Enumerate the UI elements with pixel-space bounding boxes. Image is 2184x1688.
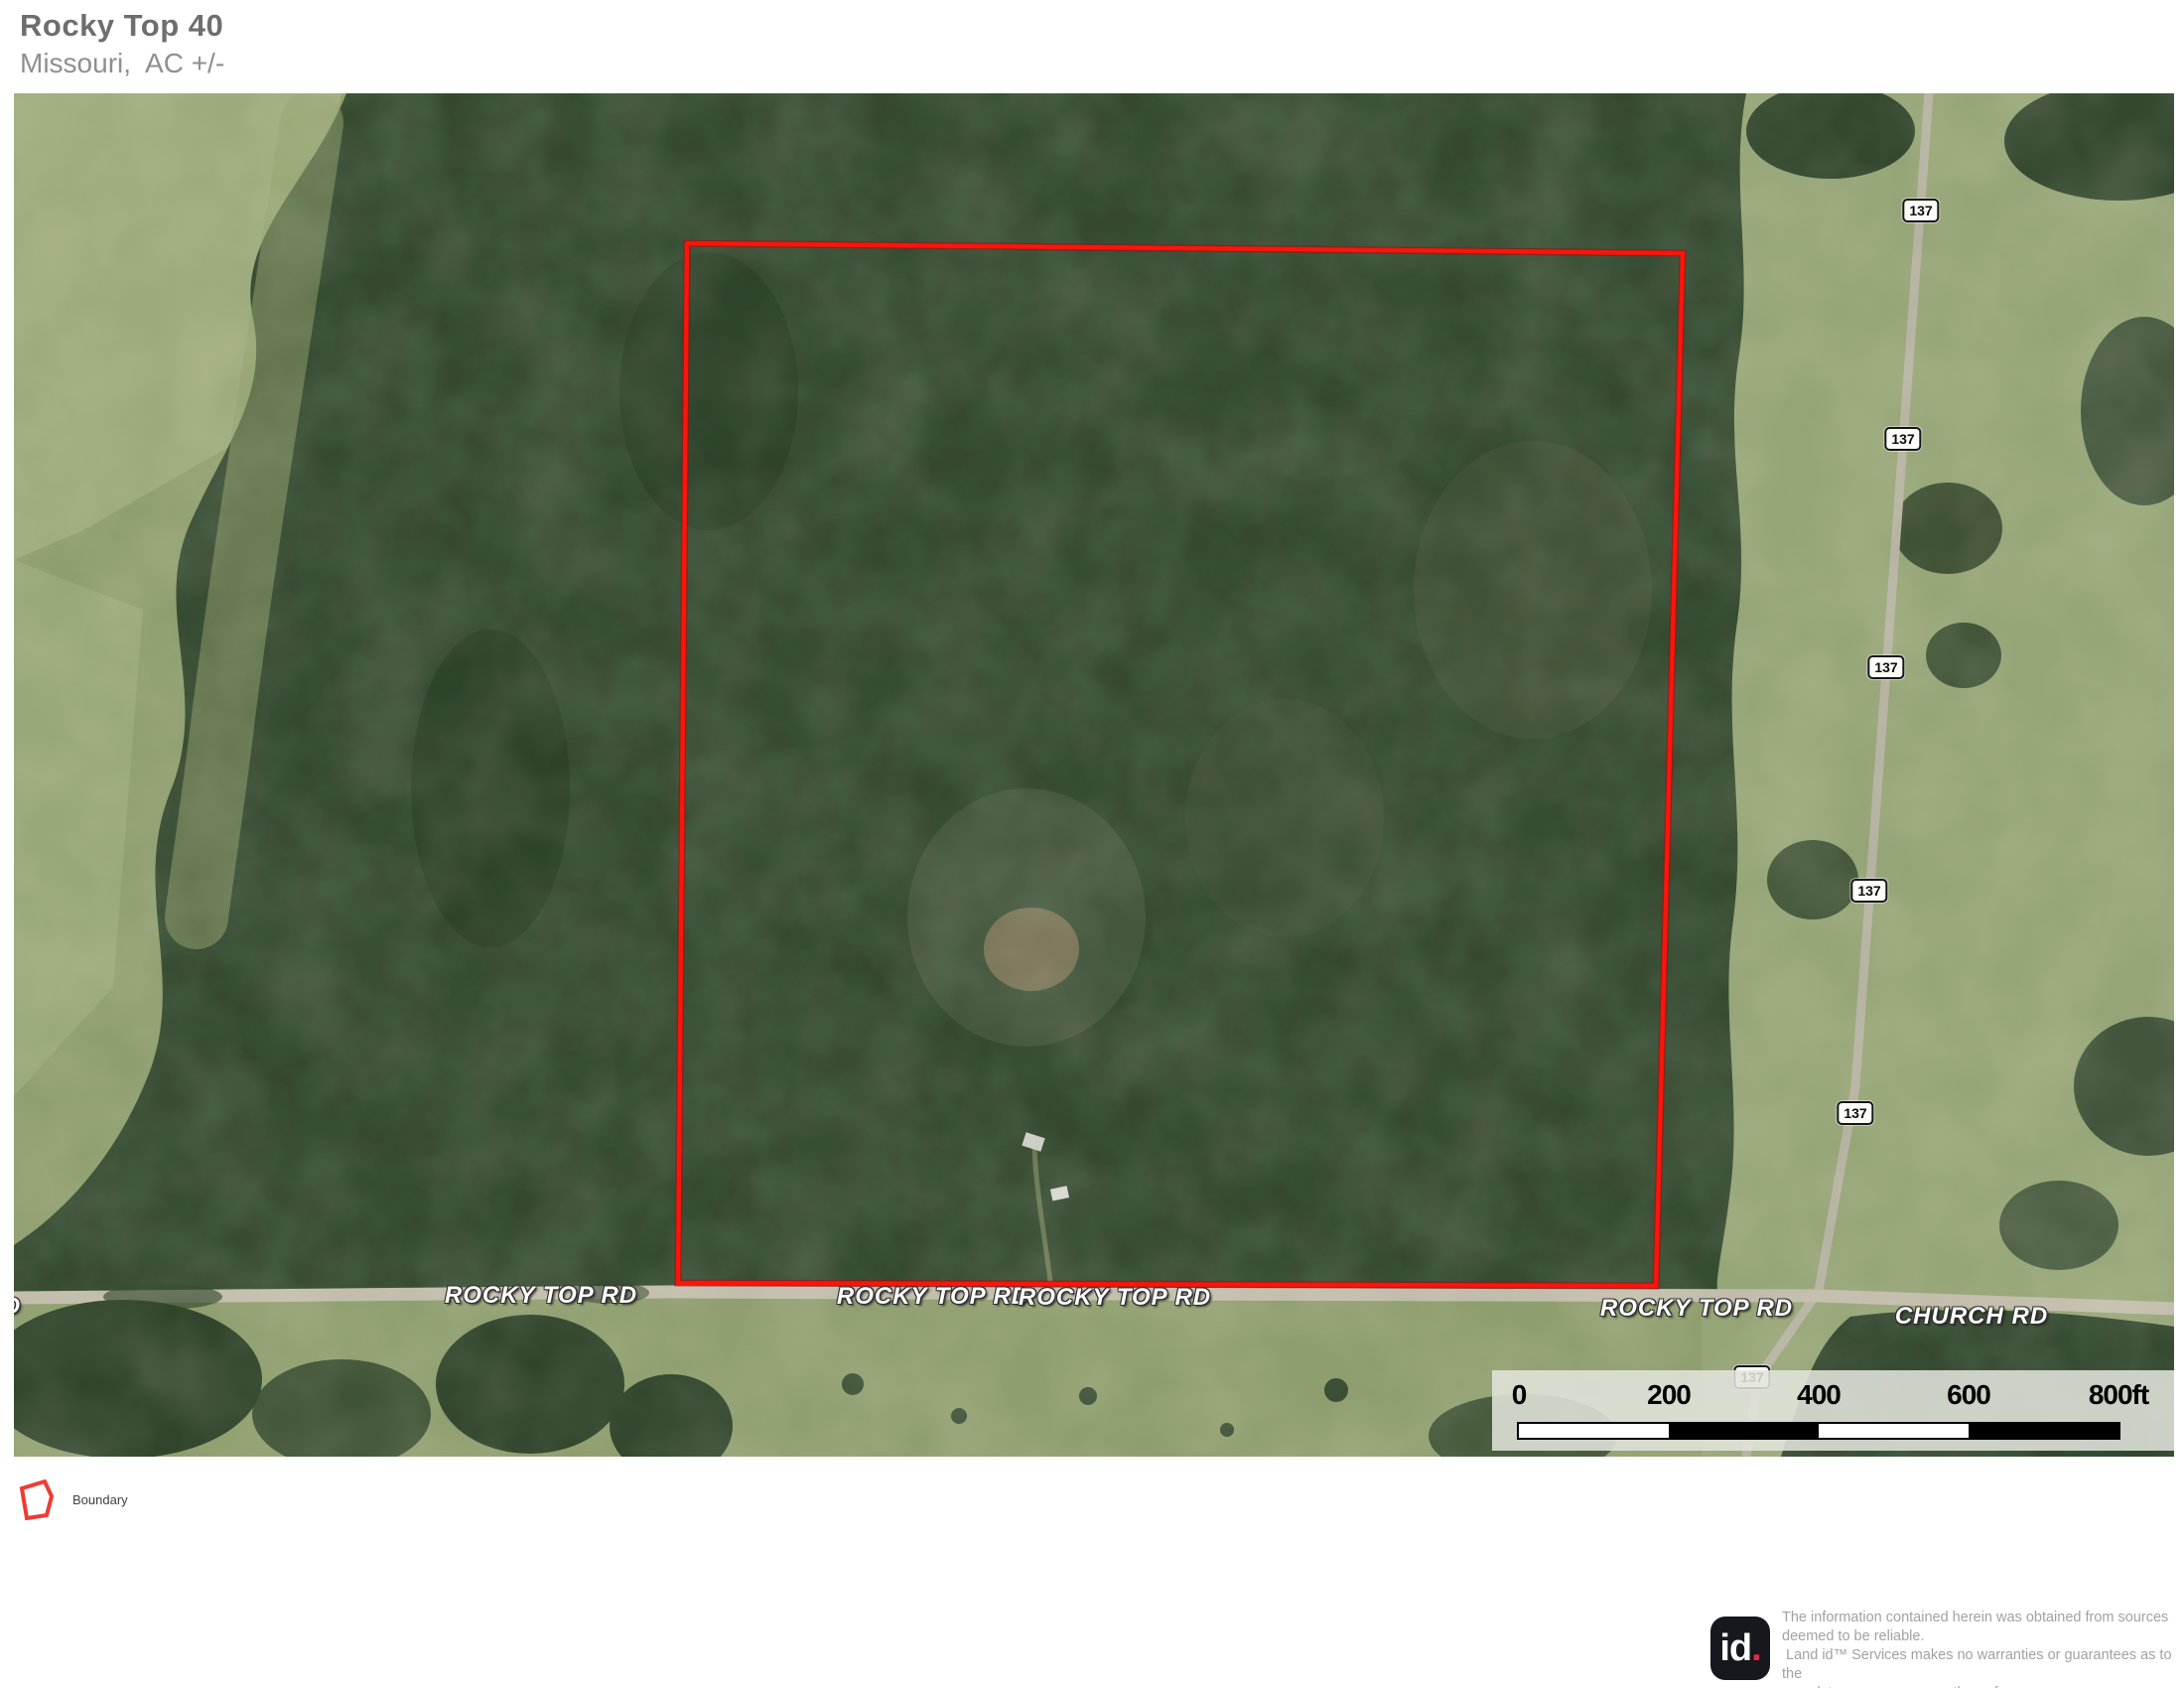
scale-bar: 0200400600800ft <box>1492 1370 2174 1451</box>
page-subtitle: Missouri, AC +/- <box>20 48 224 79</box>
map-canvas: ROCKY TOP RDROCKY TOP RDROCKY TOP RDROCK… <box>14 93 2174 1457</box>
map-export-page: Rocky Top 40 Missouri, AC +/- <box>0 0 2184 1688</box>
scale-segment <box>1969 1424 2118 1438</box>
scale-tick: 600 <box>1947 1379 1990 1411</box>
route-shield: 137 <box>1867 655 1904 679</box>
boundary-legend-icon <box>17 1478 55 1520</box>
scale-tick: 800ft <box>2089 1379 2148 1411</box>
scale-segment <box>1519 1424 1669 1438</box>
disclaimer: The information contained herein was obt… <box>1782 1609 2184 1688</box>
legend-item-label: Boundary <box>72 1492 128 1507</box>
disclaimer-line: The information contained herein was obt… <box>1782 1609 2184 1627</box>
scale-segments <box>1517 1422 2120 1440</box>
scale-segment <box>1819 1424 1969 1438</box>
scale-tick: 0 <box>1512 1379 1527 1411</box>
route-shield: 137 <box>1837 1101 1873 1125</box>
scale-tick: 200 <box>1647 1379 1691 1411</box>
landid-logo-text: id <box>1719 1627 1751 1670</box>
page-title: Rocky Top 40 <box>20 8 223 44</box>
landid-logo: id. <box>1710 1617 1770 1680</box>
scale-segment <box>1669 1424 1819 1438</box>
route-shield: 137 <box>1850 879 1887 903</box>
disclaimer-line: deemed to be reliable. <box>1782 1627 2184 1646</box>
route-shield: 137 <box>1902 199 1939 222</box>
disclaimer-line: Land id™ Services makes no warranties or… <box>1782 1646 2184 1684</box>
scale-tick: 400 <box>1797 1379 1841 1411</box>
route-shields-layer: 137137137137137137 <box>14 93 2174 1457</box>
legend: Boundary <box>17 1478 128 1520</box>
landid-logo-dot: . <box>1751 1627 1761 1670</box>
route-shield: 137 <box>1884 427 1921 451</box>
disclaimer-line: completeness or accuracy thereof. <box>1782 1684 2184 1688</box>
